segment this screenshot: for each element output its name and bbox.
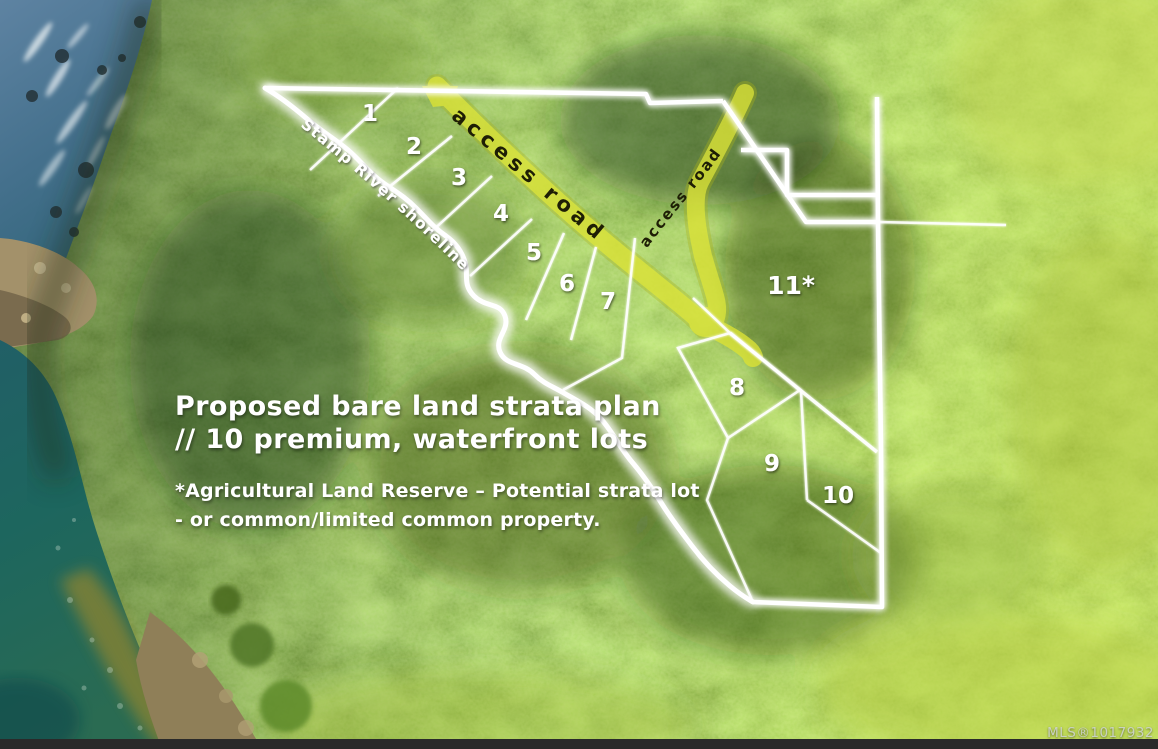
- lot-label-9: 9: [764, 451, 780, 477]
- road-label-1: access road: [447, 103, 611, 247]
- lot-label-6: 6: [559, 271, 575, 297]
- lot-label-8: 8: [729, 375, 745, 401]
- plat-overlay: access road access road Stamp River shor…: [0, 0, 1158, 749]
- title-line-1: Proposed bare land strata plan: [175, 390, 661, 423]
- note-block: *Agricultural Land Reserve – Potential s…: [175, 477, 700, 535]
- road-label-2: access road: [636, 144, 726, 251]
- title-block: Proposed bare land strata plan // 10 pre…: [175, 390, 661, 456]
- bottom-bar: [0, 739, 1158, 749]
- lot-label-4: 4: [493, 201, 509, 227]
- lot-label-11: 11*: [767, 271, 815, 300]
- lot-label-10: 10: [822, 483, 854, 509]
- lot-label-2: 2: [406, 134, 422, 160]
- lot-label-1: 1: [362, 101, 378, 127]
- note-line-1: *Agricultural Land Reserve – Potential s…: [175, 477, 700, 506]
- note-line-2: - or common/limited common property.: [175, 506, 700, 535]
- lot-label-3: 3: [451, 165, 467, 191]
- lot-label-7: 7: [600, 289, 616, 315]
- lot-label-5: 5: [526, 240, 542, 266]
- listing-photo: access road access road Stamp River shor…: [0, 0, 1158, 749]
- title-line-2: // 10 premium, waterfront lots: [175, 423, 661, 456]
